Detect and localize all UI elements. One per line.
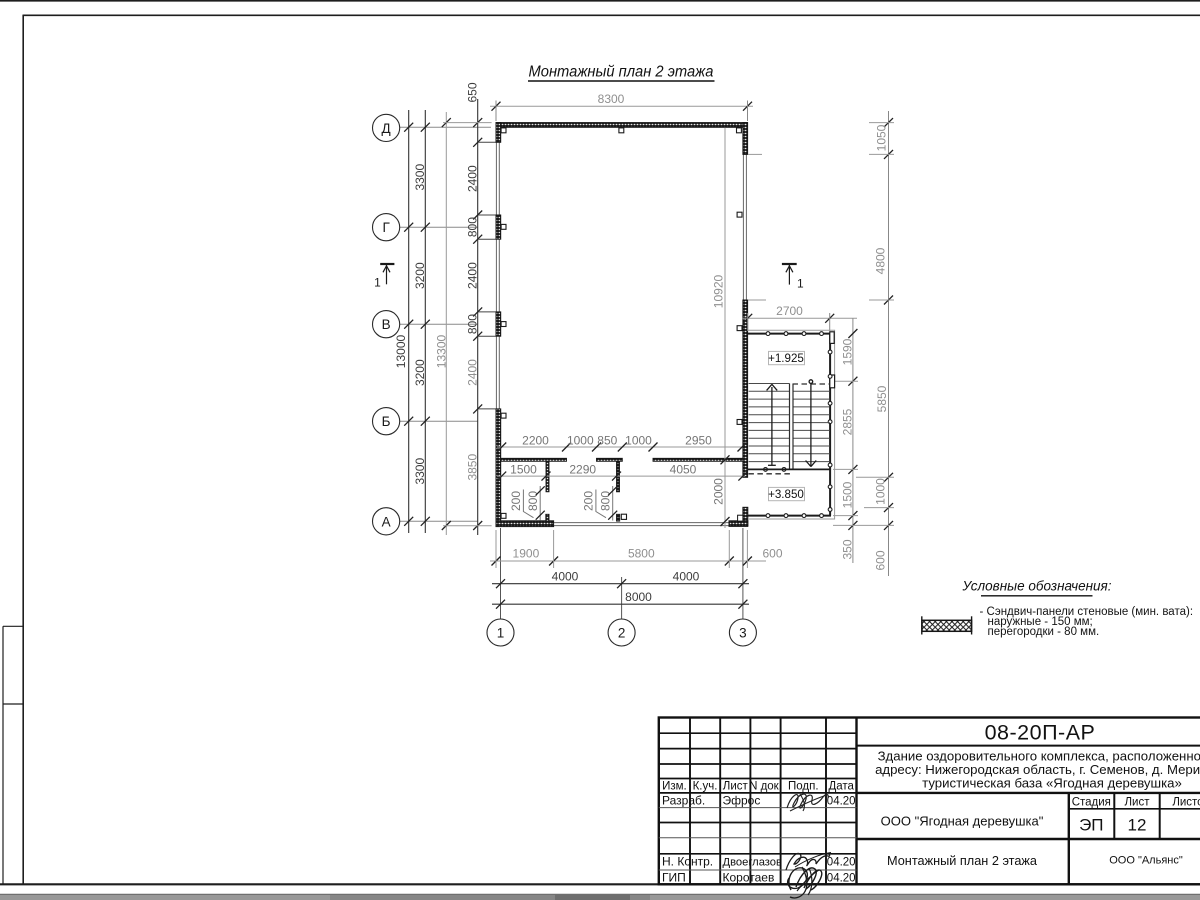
svg-text:Монтажный план 2 этажа: Монтажный план 2 этажа: [529, 64, 714, 81]
svg-text:1000: 1000: [625, 433, 652, 447]
svg-text:ООО "Альянс": ООО "Альянс": [1109, 855, 1183, 867]
svg-text:1500: 1500: [510, 463, 537, 477]
svg-text:ЭП: ЭП: [1079, 816, 1103, 835]
svg-text:2950: 2950: [685, 433, 712, 447]
svg-text:8300: 8300: [598, 92, 625, 106]
svg-text:600: 600: [762, 547, 782, 561]
svg-text:5850: 5850: [875, 385, 889, 412]
svg-text:800: 800: [465, 217, 479, 237]
svg-text:800: 800: [465, 314, 479, 334]
svg-text:10920: 10920: [712, 274, 726, 308]
svg-text:2400: 2400: [465, 262, 479, 289]
svg-text:ООО "Ягодная деревушка": ООО "Ягодная деревушка": [881, 813, 1044, 828]
svg-text:1050: 1050: [875, 124, 889, 151]
svg-text:4050: 4050: [670, 463, 697, 477]
svg-text:1500: 1500: [840, 481, 854, 508]
svg-text:1: 1: [497, 626, 505, 641]
svg-text:2400: 2400: [465, 359, 479, 386]
svg-text:4800: 4800: [874, 247, 888, 274]
svg-text:Дата: Дата: [828, 781, 854, 793]
svg-text:650: 650: [465, 82, 479, 102]
svg-text:Двоеглазов: Двоеглазов: [723, 856, 783, 868]
svg-text:Стадия: Стадия: [1072, 796, 1111, 808]
svg-text:04.20: 04.20: [827, 856, 856, 868]
svg-text:2855: 2855: [840, 408, 854, 435]
svg-text:2200: 2200: [522, 433, 549, 447]
svg-text:04.20: 04.20: [827, 796, 856, 808]
svg-text:600: 600: [874, 550, 888, 570]
svg-text:Монтажный план 2 этажа: Монтажный план 2 этажа: [887, 853, 1038, 868]
svg-text:туристическая база «Ягодная де: туристическая база «Ягодная деревушка»: [922, 776, 1182, 791]
svg-text:13000: 13000: [394, 334, 408, 368]
svg-text:3300: 3300: [413, 458, 427, 485]
svg-text:2400: 2400: [465, 165, 479, 192]
svg-text:1900: 1900: [513, 547, 540, 561]
svg-text:Разраб.: Разраб.: [662, 794, 705, 808]
svg-text:200: 200: [582, 491, 596, 511]
svg-text:13300: 13300: [434, 334, 448, 368]
svg-text:3300: 3300: [413, 164, 427, 191]
svg-text:N док.: N док.: [749, 781, 782, 793]
svg-text:Лист: Лист: [1125, 796, 1151, 808]
svg-text:12: 12: [1128, 816, 1147, 835]
svg-text:1000: 1000: [874, 478, 888, 505]
svg-text:В: В: [382, 317, 391, 332]
svg-text:Д: Д: [382, 121, 391, 136]
svg-text:Подп.: Подп.: [788, 781, 819, 793]
svg-text:Н. Контр.: Н. Контр.: [662, 854, 713, 868]
svg-text:5800: 5800: [628, 547, 655, 561]
svg-text:Эфрос: Эфрос: [723, 794, 761, 808]
svg-text:4000: 4000: [673, 570, 700, 584]
svg-text:1000: 1000: [567, 433, 594, 447]
svg-text:200: 200: [509, 491, 523, 511]
svg-text:1: 1: [374, 276, 381, 290]
svg-text:850: 850: [597, 433, 617, 447]
svg-text:К.уч.: К.уч.: [693, 781, 718, 793]
svg-text:+1.925: +1.925: [768, 352, 804, 365]
svg-text:2700: 2700: [776, 304, 803, 318]
svg-text:Изм.: Изм.: [662, 781, 687, 793]
svg-text:1590: 1590: [840, 338, 854, 365]
svg-text:Коротаев: Коротаев: [723, 870, 775, 884]
svg-text:А: А: [382, 514, 391, 529]
svg-text:3850: 3850: [465, 454, 479, 481]
svg-text:3200: 3200: [413, 262, 427, 289]
svg-text:4000: 4000: [552, 570, 579, 584]
svg-text:Г: Г: [382, 220, 390, 235]
svg-text:Лист: Лист: [723, 781, 749, 793]
svg-text:3: 3: [739, 626, 747, 641]
svg-text:350: 350: [840, 539, 854, 559]
svg-text:ГИП: ГИП: [662, 870, 686, 884]
svg-text:04.20: 04.20: [827, 872, 856, 884]
svg-text:Условные обозначения:: Условные обозначения:: [961, 579, 1111, 594]
svg-text:3200: 3200: [413, 359, 427, 386]
svg-text:Б: Б: [382, 414, 391, 429]
svg-text:8000: 8000: [625, 590, 652, 604]
svg-text:перегородки - 80 мм.: перегородки - 80 мм.: [988, 626, 1100, 638]
svg-text:2000: 2000: [712, 478, 726, 505]
svg-text:Листов: Листов: [1172, 796, 1200, 808]
svg-text:+3.850: +3.850: [768, 488, 804, 501]
svg-text:2290: 2290: [569, 463, 596, 477]
svg-text:1: 1: [797, 277, 804, 291]
svg-text:08-20П-АР: 08-20П-АР: [985, 721, 1096, 745]
svg-text:2: 2: [618, 626, 626, 641]
